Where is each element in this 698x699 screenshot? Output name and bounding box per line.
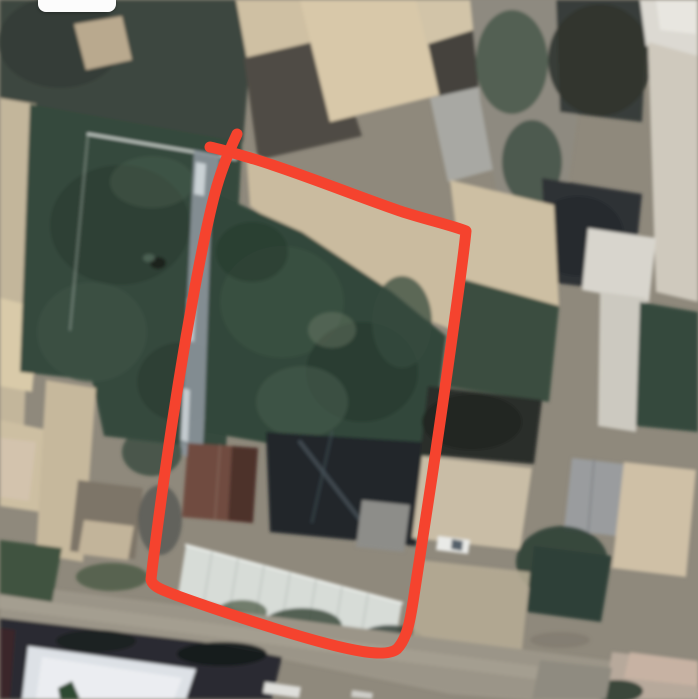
right-edge-band (648, 42, 698, 302)
garden-hole-rim (143, 254, 155, 262)
dark-tree-bottom-left-2 (177, 642, 267, 666)
road-dark-mark (530, 632, 590, 648)
green-strip-left-of-road (0, 540, 62, 602)
satellite-image[interactable] (0, 0, 698, 699)
plot-garden-blob-5 (372, 276, 432, 368)
tan-roof-left (78, 520, 134, 560)
track-dash-1 (194, 162, 206, 196)
garden-left-blob-4 (110, 156, 194, 208)
white-car-windshield (451, 539, 463, 551)
green-strip-blob (76, 563, 148, 591)
dark-green-right (636, 302, 698, 432)
garden-left-blob-2 (37, 282, 147, 382)
screenshot-root (0, 0, 698, 699)
brown-roof-dark-half (228, 446, 258, 523)
top-ui-pill (38, 0, 116, 12)
courtyard-trees-1 (476, 10, 548, 114)
plot-garden-light-patch (308, 312, 356, 348)
green-patch-bottom-right (527, 546, 612, 622)
white-roof-right (582, 228, 656, 302)
light-courtyard-wedge (412, 560, 530, 650)
dark-tree-bottom-left-1 (56, 630, 136, 652)
white-roof-top-right-bright (656, 0, 696, 34)
dark-trees-top-right-blob (548, 4, 652, 116)
gray-roof-in-plot (356, 500, 410, 552)
beige-roof-bottom-right (612, 462, 696, 577)
plot-garden-blob-4 (216, 222, 288, 282)
plot-garden-blob-3 (256, 366, 348, 438)
